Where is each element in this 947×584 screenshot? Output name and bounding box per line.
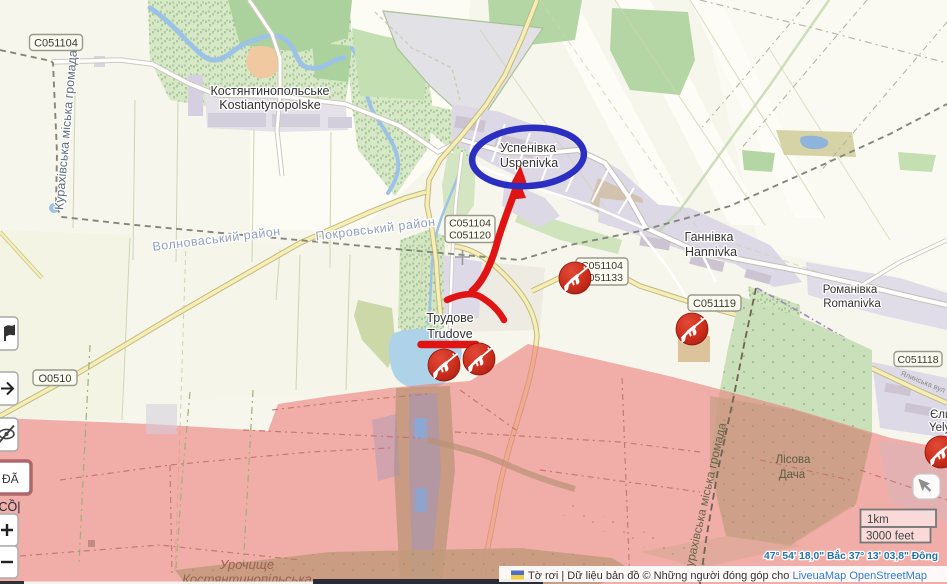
svg-text:ıCỒ|: ıCỒ| (0, 499, 20, 514)
svg-text:C051119: C051119 (693, 298, 736, 310)
svg-text:Успенівка: Успенівка (500, 141, 556, 155)
svg-text:Лісова: Лісова (776, 454, 811, 466)
svg-text:1km: 1km (867, 514, 889, 526)
svg-text:Uspenivka: Uspenivka (500, 156, 558, 170)
svg-text:Romanivka: Romanivka (823, 298, 881, 310)
svg-text:O0510: O0510 (38, 373, 71, 385)
svg-text:Hannivka: Hannivka (685, 245, 737, 259)
svg-text:Костянтинопольське: Костянтинопольське (210, 84, 329, 98)
svg-text:3000 feet: 3000 feet (866, 531, 915, 543)
svg-text:C051104: C051104 (449, 218, 491, 230)
svg-text:Ганнівка: Ганнівка (685, 230, 734, 244)
svg-text:Трудове: Трудове (426, 311, 473, 325)
svg-text:Єли: Єли (930, 409, 947, 421)
svg-text:Tờ rơi | Dữ liệu bản đồ © Nhữn: Tờ rơi | Dữ liệu bản đồ © Những người đó… (528, 570, 927, 582)
svg-text:Дача: Дача (779, 469, 806, 481)
svg-text:ĐÃ: ĐÃ (2, 472, 19, 486)
svg-text:Trudove: Trudove (427, 327, 472, 341)
svg-text:C051120: C051120 (449, 230, 491, 242)
svg-text:47° 54' 18,0" Bắc 37° 13' 03,8: 47° 54' 18,0" Bắc 37° 13' 03,8" Đông (764, 549, 938, 562)
svg-text:Урочище: Урочище (219, 557, 274, 572)
svg-text:C051118: C051118 (897, 354, 938, 366)
svg-text:C051104: C051104 (34, 38, 78, 50)
svg-text:Kostiantynopolske: Kostiantynopolske (219, 98, 321, 112)
svg-text:Yely: Yely (929, 422, 947, 434)
svg-text:Романівка: Романівка (823, 284, 878, 296)
